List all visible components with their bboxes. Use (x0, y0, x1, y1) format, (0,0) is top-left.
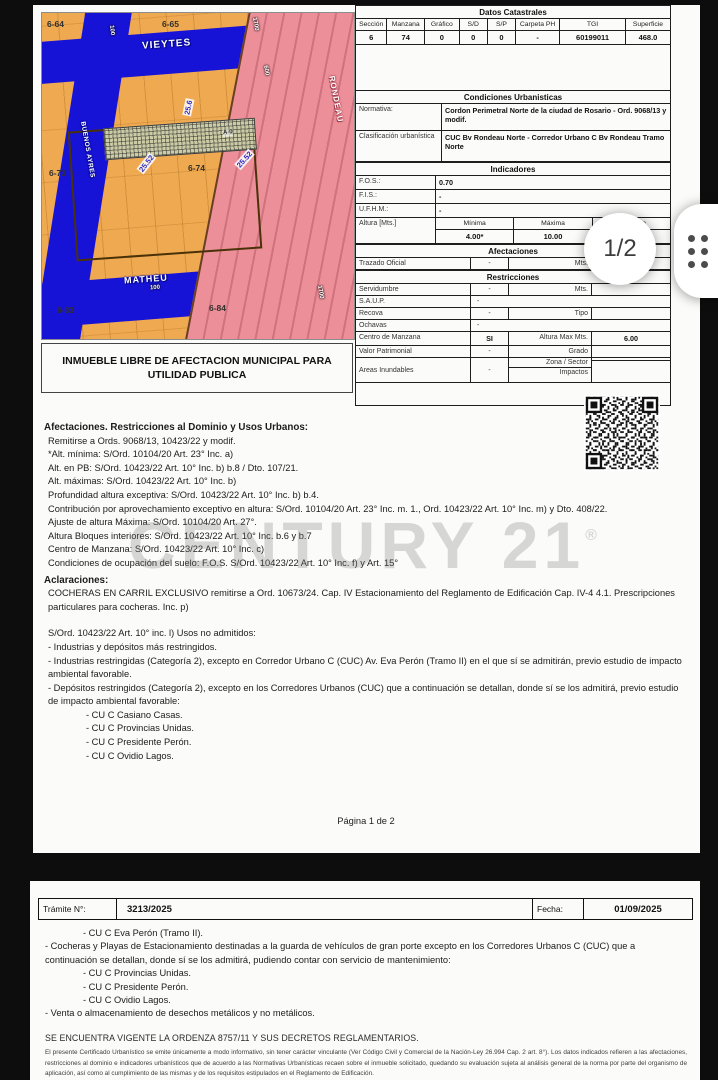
cell-superficie: 468.0 (626, 31, 670, 44)
tramite-value: 3213/2025 (117, 899, 532, 919)
column-header: Superficie (626, 19, 670, 30)
centro-unit: Altura Max Mts. (509, 332, 592, 345)
body-line: Profundidad altura exceptiva: S/Ord. 104… (48, 489, 684, 503)
condiciones-table: Condiciones Urbanisticas Normativa: Cord… (355, 90, 671, 162)
altura-minima: 4.00* (436, 230, 514, 243)
valor-unit: Grado (509, 346, 592, 357)
valor-value: - (471, 346, 509, 357)
fos-value: 0.70 (436, 176, 670, 189)
body-line: COCHERAS EN CARRIL EXCLUSIVO remitirse a… (48, 587, 684, 614)
certificate-page-2: Trámite N°: 3213/2025 Fecha: 01/09/2025 … (30, 881, 700, 1080)
clasificacion-value: CUC Bv Rondeau Norte - Corredor Urbano C… (442, 131, 670, 161)
row-label: Ochavas (356, 320, 471, 331)
row-label: Centro de Manzana (356, 332, 471, 345)
trazado-value: - (471, 258, 509, 269)
qr-code (584, 395, 660, 471)
block-label: 6-65 (162, 19, 179, 29)
row-label: F.O.S.: (356, 176, 436, 189)
page-indicator-bubble: 1/2 (584, 213, 656, 285)
cell-sd: 0 (460, 31, 488, 44)
empty-cell (592, 284, 670, 295)
row-label: F.I.S.: (356, 190, 436, 203)
page2-body-text: - CU C Eva Perón (Tramo II). - Cocheras … (45, 927, 687, 1079)
tramite-label: Trámite N°: (39, 899, 117, 919)
column-header: Sección (356, 19, 387, 30)
centro-value: SI (471, 332, 509, 345)
areas-impactos: Impactos (509, 368, 591, 377)
table-title: Datos Catastrales (356, 6, 670, 19)
cell-sp: 0 (488, 31, 516, 44)
cell-manzana: 74 (387, 31, 425, 44)
body-line: - CU C Eva Perón (Tramo II). (45, 927, 687, 940)
body-line: S/Ord. 10423/22 Art. 10° inc. l) Usos no… (48, 627, 684, 641)
normativa-value: Cordon Perimetral Norte de la ciudad de … (442, 104, 670, 130)
certificate-body-text: Afectaciones. Restricciones al Dominio y… (48, 421, 684, 763)
trazado-unit: Mts. (509, 258, 592, 269)
column-header: TGI (560, 19, 626, 30)
saup-value: - (471, 296, 670, 307)
row-label: Clasificación urbanística (356, 131, 442, 161)
document-viewer: A-0 VIEYTES MATHEU BUENOS AYRES RONDEAU … (0, 0, 718, 1080)
recova-unit: Tipo (509, 308, 592, 319)
column-header: Gráfico (425, 19, 460, 30)
page-number-footer: Página 1 de 2 (48, 816, 684, 826)
ordenanza-vigente-line: SE ENCUENTRA VIGENTE LA ORDENZA 8757/11 … (45, 1032, 687, 1045)
section-heading: Aclaraciones: (44, 574, 684, 588)
body-line: - CU C Provincias Unidas. (45, 967, 687, 980)
cell-tgi: 60199011 (560, 31, 626, 44)
column-header: Carpeta PH (516, 19, 560, 30)
street-number-chip: 100 (108, 25, 115, 36)
column-header: Manzana (387, 19, 425, 30)
body-line: - CU C Provincias Unidas. (48, 722, 684, 736)
body-line: Ajuste de altura Máxima: S/Ord. 10104/20… (48, 516, 684, 530)
page-indicator-text: 1/2 (603, 235, 636, 263)
servidumbre-value: - (471, 284, 509, 295)
fecha-label: Fecha: (532, 899, 584, 919)
row-label: Servidumbre (356, 284, 471, 295)
areas-zona-sector: Zona / Sector (509, 358, 591, 368)
empty-cell (592, 361, 670, 363)
servidumbre-unit: Mts. (509, 284, 592, 295)
cell-carpeta-ph: - (516, 31, 560, 44)
cadastral-tables: Datos Catastrales Sección Manzana Gráfic… (355, 5, 671, 406)
cadastral-map: A-0 VIEYTES MATHEU BUENOS AYRES RONDEAU … (41, 12, 355, 340)
municipal-note: INMUEBLE LIBRE DE AFECTACION MUNICIPAL P… (41, 343, 353, 393)
certificate-page-1: A-0 VIEYTES MATHEU BUENOS AYRES RONDEAU … (33, 5, 700, 853)
body-line: - Industrias y depósitos más restringido… (48, 641, 684, 655)
empty-cell (592, 308, 670, 319)
parcel-label: A-0 (223, 129, 233, 137)
body-line: - CU C Presidente Perón. (48, 736, 684, 750)
cell-grafico: 0 (425, 31, 460, 44)
fecha-value: 01/09/2025 (584, 899, 692, 919)
row-label: Areas Inundables (356, 358, 471, 382)
block-label: 6-64 (47, 19, 64, 29)
recova-value: - (471, 308, 509, 319)
table-spacer (355, 45, 671, 90)
block-label: 6-73 (49, 168, 66, 178)
body-line: - CU C Presidente Perón. (45, 981, 687, 994)
datos-catastrales-table: Datos Catastrales Sección Manzana Gráfic… (355, 5, 671, 45)
empty-cell (592, 346, 670, 357)
row-label: Normativa: (356, 104, 442, 130)
block-label: 6-74 (188, 163, 205, 173)
body-line: - CU C Casiano Casas. (48, 709, 684, 723)
altura-maxima: 10.00 (514, 230, 592, 243)
body-line: - CU C Ovidio Lagos. (48, 750, 684, 764)
restricciones-table: Restricciones Servidumbre - Mts. S.A.U.P… (355, 270, 671, 406)
body-line: Contribución por aprovechamiento excepti… (48, 503, 684, 517)
body-line: - CU C Ovidio Lagos. (45, 994, 687, 1007)
areas-value: - (471, 358, 509, 382)
tramite-table: Trámite N°: 3213/2025 Fecha: 01/09/2025 (38, 898, 693, 920)
body-line: Centro de Manzana: S/Ord. 10423/22 Art. … (48, 543, 684, 557)
legal-fine-print: El presente Certificado Urbanístico se e… (45, 1048, 687, 1079)
body-line: Alt. máximas: S/Ord. 10423/22 Art. 10° I… (48, 475, 684, 489)
body-line: - Cocheras y Playas de Estacionamiento d… (45, 940, 687, 967)
six-dots-menu-icon[interactable] (688, 235, 708, 268)
cell-seccion: 6 (356, 31, 387, 44)
column-header: S/D (460, 19, 488, 30)
column-header: S/P (488, 19, 516, 30)
ufhm-value: - (436, 204, 670, 217)
body-line: - Depósitos restringidos (Categoría 2), … (48, 682, 684, 709)
altura-header: Mínima (436, 218, 514, 229)
row-label: Altura [Mts.] (356, 218, 436, 243)
body-line: - Venta o almacenamiento de desechos met… (45, 1007, 687, 1020)
street-number-chip: 100 (150, 285, 160, 292)
altura-header: Máxima (514, 218, 592, 229)
body-line: Condiciones de ocupación del suelo: F.O.… (48, 557, 684, 571)
row-label: Valor Patrimonial (356, 346, 471, 357)
row-label: U.F.H.M.: (356, 204, 436, 217)
body-line: Altura Bloques interiores: S/Ord. 10423/… (48, 530, 684, 544)
table-title: Indicadores (356, 163, 670, 176)
ochavas-value: - (471, 320, 670, 331)
fis-value: - (436, 190, 670, 203)
row-label: Recova (356, 308, 471, 319)
block-label: 6-83 (57, 305, 74, 315)
row-label: S.A.U.P. (356, 296, 471, 307)
block-label: 6-84 (209, 303, 226, 313)
centro-altura-max: 6.00 (592, 332, 670, 345)
table-title: Condiciones Urbanisticas (356, 91, 670, 104)
body-line: - Industrias restringidas (Categoría 2),… (48, 655, 684, 682)
menu-pill-button[interactable] (674, 204, 718, 298)
row-label: Trazado Oficial (356, 258, 471, 269)
